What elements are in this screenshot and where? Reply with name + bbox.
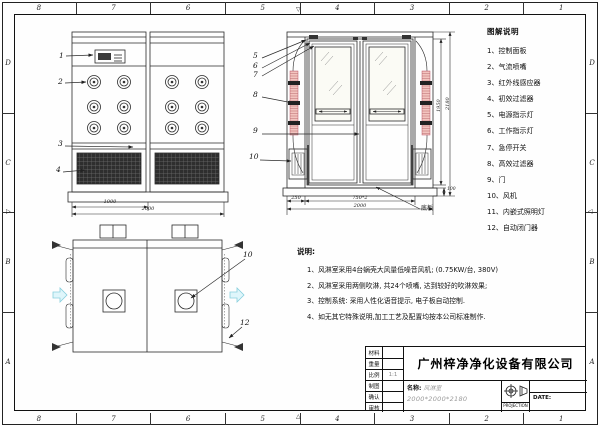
zone-label: 8 <box>2 413 77 425</box>
zone-label: 1 <box>524 2 598 14</box>
name-label: 名称: <box>407 385 421 392</box>
roof-door-closers <box>100 225 198 238</box>
zone-label: 7 <box>77 2 152 14</box>
zone-label: C <box>2 114 14 214</box>
third-angle-projection-icon <box>503 381 529 401</box>
tb-row-label: 审核 <box>366 402 382 412</box>
tb-row-label: 比例 <box>366 369 382 380</box>
tb-row-value <box>382 391 403 402</box>
zone-label: 7 <box>77 413 152 425</box>
legend-title: 图解说明 <box>487 26 583 37</box>
side-column-left <box>288 41 309 185</box>
base-plinth <box>68 192 228 202</box>
date-cell: DATE: <box>529 380 587 412</box>
legend-item: 2、气流喷嘴 <box>487 59 583 75</box>
dim-250: 250 <box>284 195 308 201</box>
zone-label: 8 <box>2 2 77 14</box>
zone-label: B <box>2 213 14 313</box>
tb-row-label: 确认 <box>366 391 382 402</box>
center-mark-bottom: △ <box>296 414 301 420</box>
legend-item: 10、风机 <box>487 188 583 204</box>
zone-label: B <box>586 213 598 313</box>
zone-label: 6 <box>151 413 226 425</box>
legend-item: 12、自动闭门器 <box>487 220 583 236</box>
callout-2: 2 <box>58 77 63 86</box>
tb-row-label: 重量 <box>366 358 382 369</box>
zone-label: 5 <box>226 413 301 425</box>
projection-label: PROJECTION <box>502 402 529 408</box>
legend-item: 5、电源指示灯 <box>487 107 583 123</box>
zone-label: 5 <box>226 2 301 14</box>
legend-item: 7、急停开关 <box>487 140 583 156</box>
projection-cell: PROJECTION <box>501 380 529 412</box>
zone-label: 3 <box>375 413 450 425</box>
door-glass <box>315 47 351 121</box>
nozzle-grid-left <box>88 76 131 135</box>
zone-label: 3 <box>375 2 450 14</box>
zone-label: 1 <box>524 413 598 425</box>
side-column-right <box>411 41 432 185</box>
callout-6: 6 <box>253 61 258 70</box>
roof-fan-left <box>103 290 125 312</box>
nozzle-grid-right <box>166 76 209 135</box>
zone-label: A <box>586 313 598 412</box>
legend-item: 1、控制面板 <box>487 43 583 59</box>
zone-label: D <box>2 14 14 114</box>
callout-1: 1 <box>59 51 64 60</box>
note-line: 2、风淋室采用两侧吹淋, 共24个喷嘴, 达到较好的吹淋效果; <box>297 279 585 295</box>
door-leaf-right <box>363 41 411 183</box>
dim-2000: 2000 <box>133 206 163 212</box>
tb-row-value <box>382 347 403 358</box>
dim-1000: 1000 <box>95 199 125 205</box>
tb-row-value: 1:1 <box>382 369 403 380</box>
door-leaf-left <box>309 41 357 183</box>
center-mark-right: ◁ <box>588 209 593 215</box>
callout-7: 7 <box>253 70 258 79</box>
note-line: 3、控制系统: 采用人性化语音提示, 电子板自动控制. <box>297 294 585 310</box>
control-panel <box>95 50 125 63</box>
tb-row-value <box>382 402 403 412</box>
legend-item: 8、高效过滤器 <box>487 156 583 172</box>
legend-item: 4、初效过滤器 <box>487 91 583 107</box>
zone-label: 2 <box>450 413 525 425</box>
prefilter-grille <box>155 153 219 184</box>
title-block: 材料 重量 比例 1:1 制图 确认 审核 广州梓净净化设备有限公司 名称: 风… <box>365 346 586 411</box>
zone-label: A <box>2 313 14 412</box>
notes-panel: 说明: 1、风淋室采用4台蜗壳大风量低噪音风机; (0.75KW/台, 380V… <box>297 246 585 325</box>
callout-10: 10 <box>249 152 259 161</box>
callout-4: 4 <box>56 165 61 174</box>
callout-8: 8 <box>253 90 258 99</box>
legend-panel: 图解说明 1、控制面板 2、气流喷嘴 3、红外线感应器 4、初效过滤器 5、电源… <box>487 26 583 236</box>
airflow-arrows <box>53 288 244 302</box>
drawing-sheet: 8 7 6 5 4 3 2 1 8 7 6 5 4 3 2 1 D C B A … <box>0 0 600 427</box>
door-glass <box>369 47 405 121</box>
legend-item: 11、内嵌式照明灯 <box>487 204 583 220</box>
date-label: DATE: <box>530 393 587 403</box>
zone-label: D <box>586 14 598 114</box>
legend-item: 9、门 <box>487 172 583 188</box>
door-leaves-plan <box>66 254 229 328</box>
center-mark-left: ▷ <box>6 209 11 215</box>
product-size: 2000*2000*2180 <box>407 395 498 403</box>
dim-2180: 2180 <box>445 97 451 110</box>
wall-panel-right <box>150 32 224 192</box>
plan-outline <box>73 240 222 352</box>
prefilter-grille <box>77 153 141 184</box>
note-line: 4、如无其它特殊说明,加工工艺及配置均按本公司标准制作. <box>297 310 585 326</box>
callout-fan-plan: 10 <box>243 250 253 259</box>
callout-3: 3 <box>58 139 63 148</box>
dim-1950: 1950 <box>436 99 442 112</box>
zone-label: 4 <box>301 413 376 425</box>
legend-item: 6、工作指示灯 <box>487 123 583 139</box>
dim-100: 100 <box>447 187 456 192</box>
center-mark-top: ▽ <box>296 7 301 13</box>
callout-9: 9 <box>253 126 258 135</box>
product-name: 风淋室 <box>423 385 441 392</box>
tb-row-value <box>382 380 403 391</box>
zone-label: 2 <box>450 2 525 14</box>
callout-closer-plan: 12 <box>240 318 250 327</box>
zone-label: 6 <box>151 2 226 14</box>
company-name: 广州梓净净化设备有限公司 <box>403 347 587 380</box>
tb-row-value <box>382 358 403 369</box>
wall-panel-left <box>72 32 146 192</box>
tb-row-label: 材料 <box>366 347 382 358</box>
tb-row-label: 制图 <box>366 380 382 391</box>
dim-2000-front: 2000 <box>345 203 375 209</box>
corner-closer-arms <box>52 241 243 351</box>
notes-title: 说明: <box>297 246 585 257</box>
base-plate-label: 底板 <box>421 203 433 212</box>
roof-fan-right <box>175 290 197 312</box>
dim-750x2: 750*2 <box>345 195 375 201</box>
zone-label: 4 <box>301 2 376 14</box>
zone-label: C <box>586 114 598 214</box>
note-line: 1、风淋室采用4台蜗壳大风量低噪音风机; (0.75KW/台, 380V) <box>297 263 585 279</box>
callout-5: 5 <box>253 51 258 60</box>
legend-item: 3、红外线感应器 <box>487 75 583 91</box>
plan-view-drawing <box>45 218 260 363</box>
side-view-drawing <box>55 25 240 220</box>
drawing-name-cell: 名称: 风淋室 2000*2000*2180 <box>403 380 501 412</box>
